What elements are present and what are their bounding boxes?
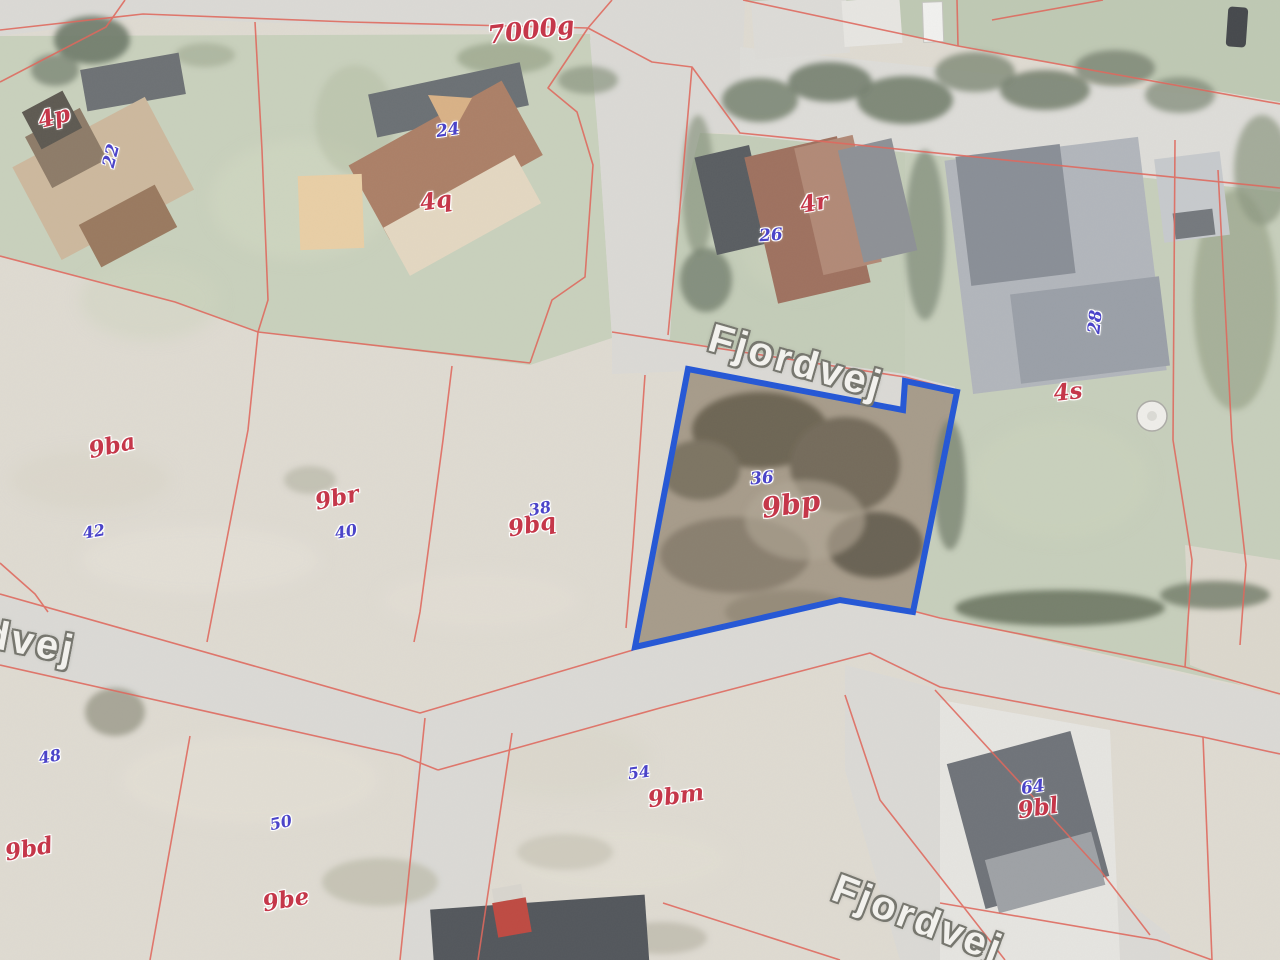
photo-grain xyxy=(0,0,1280,960)
map-canvas[interactable]: Fjordvej Fjordvej dvej 7000g 4p 4q 4r 4s… xyxy=(0,0,1280,960)
orthophoto-layer xyxy=(0,0,1280,960)
